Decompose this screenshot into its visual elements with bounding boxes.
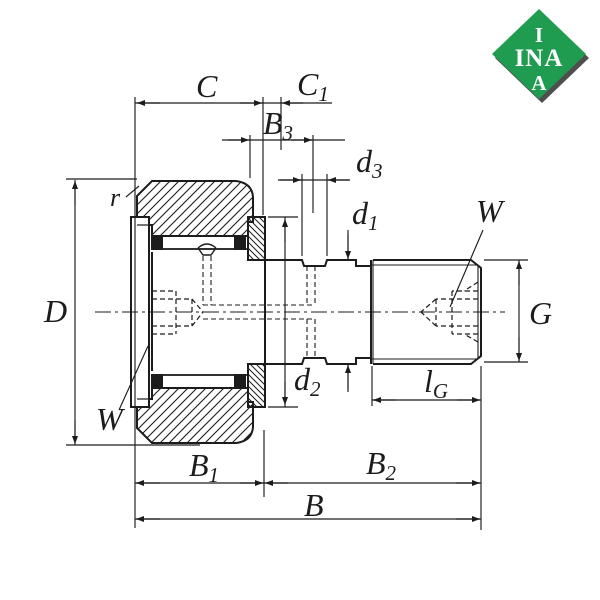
label-C1: C1 — [297, 66, 329, 106]
ina-logo-line1: I — [535, 23, 543, 47]
stud-flange-top-section — [248, 217, 265, 260]
label-B1: B1 — [189, 447, 219, 487]
label-d1: d1 — [352, 195, 379, 235]
bearing-drawing-page: C C1 B3 d3 d1 d2 D r W W G lG B1 B2 B I … — [0, 0, 600, 600]
cam-follower-drawing: C C1 B3 d3 d1 d2 D r W W G lG B1 B2 B I … — [0, 0, 600, 600]
w-left-leader — [119, 346, 148, 410]
label-B3: B3 — [263, 105, 293, 145]
label-r: r — [110, 183, 121, 212]
ina-logo-line3: A — [531, 71, 547, 95]
label-C: C — [196, 68, 218, 104]
label-lG: lG — [424, 363, 448, 403]
label-d2: d2 — [294, 361, 321, 401]
ina-logo-line2: INA — [515, 45, 564, 72]
label-B: B — [304, 487, 324, 523]
dimension-labels: C C1 B3 d3 d1 d2 D r W W G lG B1 B2 B — [43, 66, 552, 523]
label-d3: d3 — [356, 143, 383, 183]
ina-logo: I INA A — [492, 9, 589, 103]
needle-roller-row-bottom — [152, 375, 245, 388]
label-D: D — [43, 293, 67, 329]
part-outlines — [95, 181, 505, 443]
label-W-left: W — [96, 401, 126, 437]
stud-flange-bottom-section — [248, 364, 265, 407]
lubrication-duct — [198, 244, 315, 358]
label-W-right: W — [476, 193, 506, 229]
label-B2: B2 — [366, 445, 397, 485]
dimension-lines — [66, 97, 528, 530]
outer-ring-top-section — [137, 181, 253, 236]
label-G: G — [529, 295, 552, 331]
outer-ring-bottom-section — [137, 388, 253, 443]
